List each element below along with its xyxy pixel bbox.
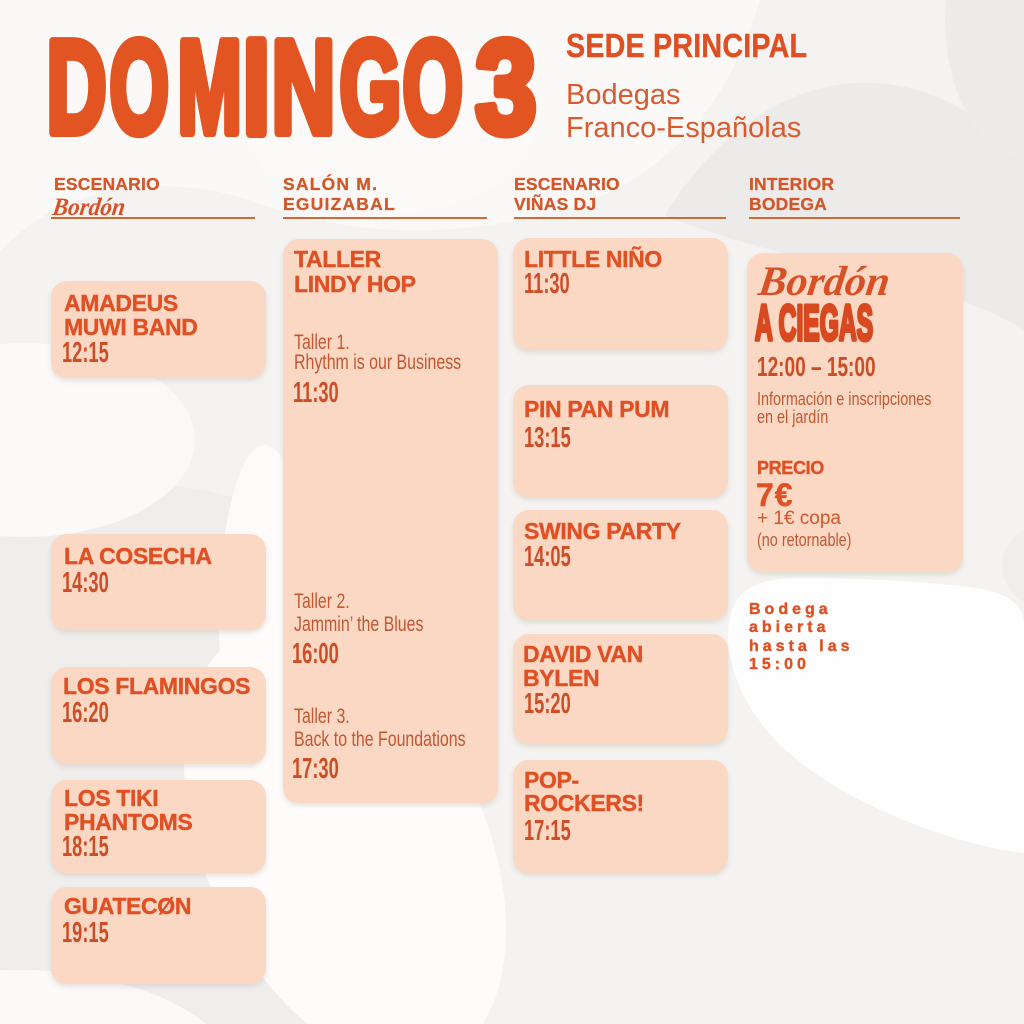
svg-text:M: M: [178, 14, 242, 161]
svg-text:A CIEGAS: A CIEGAS: [755, 295, 873, 351]
svg-text:I: I: [244, 14, 270, 161]
svg-text:N: N: [272, 14, 336, 161]
svg-text:D: D: [47, 14, 107, 161]
svg-text:G: G: [340, 14, 402, 161]
svg-text:O: O: [110, 14, 170, 161]
svg-text:3: 3: [476, 14, 537, 161]
svg-text:O: O: [403, 14, 464, 161]
